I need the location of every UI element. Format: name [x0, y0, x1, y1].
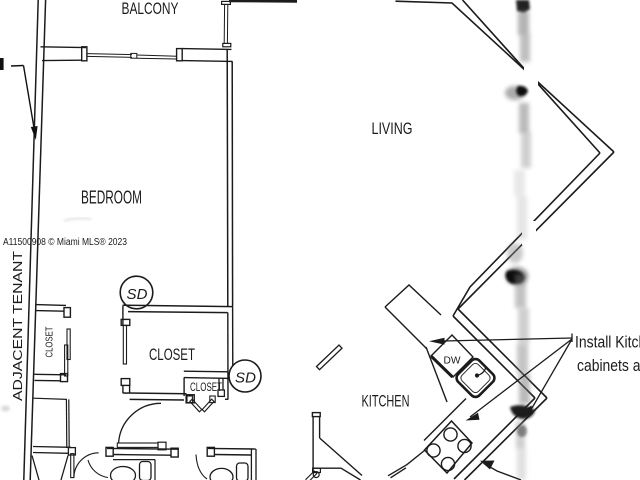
svg-text:SD: SD	[235, 370, 256, 387]
svg-text:CLOSET: CLOSET	[149, 346, 195, 364]
svg-text:SD: SD	[127, 286, 148, 303]
svg-text:KITCHEN: KITCHEN	[362, 392, 410, 411]
svg-text:DW: DW	[444, 355, 461, 367]
svg-text:ADJACENT TENANT: ADJACENT TENANT	[10, 251, 25, 401]
svg-text:LIVING: LIVING	[372, 119, 413, 138]
svg-text:Install Kitchen: Install Kitchen	[575, 333, 640, 352]
svg-text:BALCONY: BALCONY	[122, 0, 179, 18]
svg-text:CLOSET: CLOSET	[190, 382, 222, 394]
svg-text:cabinets and: cabinets and	[577, 357, 640, 376]
svg-text:CLOSET: CLOSET	[45, 327, 56, 358]
svg-text:BEDROOM: BEDROOM	[81, 188, 142, 208]
svg-text:A11500908 © Miami MLS® 2023: A11500908 © Miami MLS® 2023	[3, 237, 127, 248]
